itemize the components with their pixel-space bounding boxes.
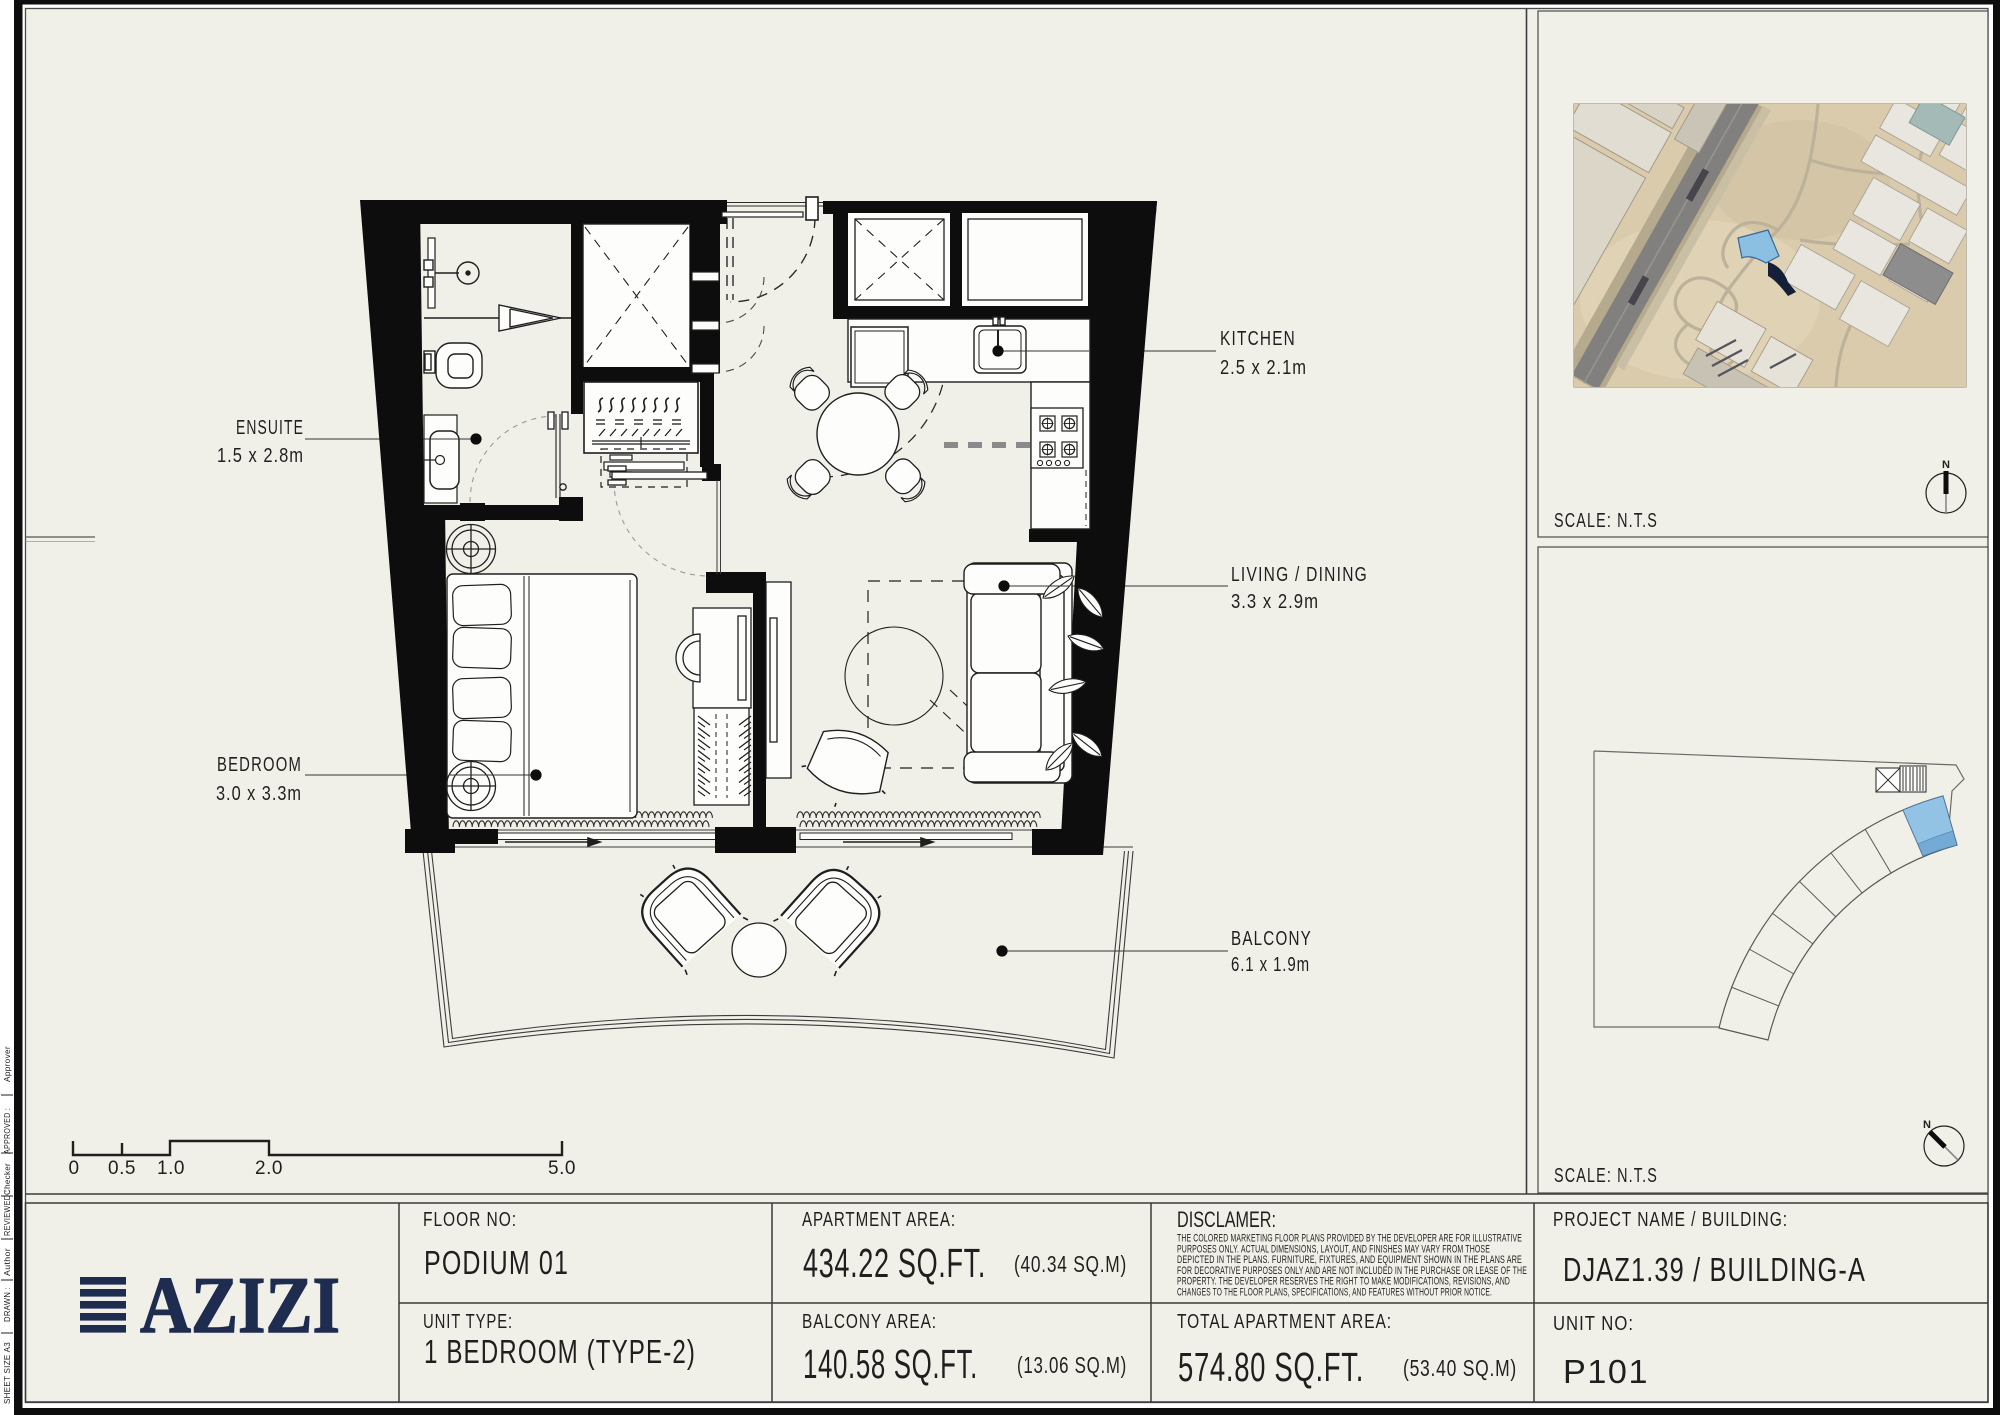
svg-text:CHANGES TO THE FLOOR PLANS, SP: CHANGES TO THE FLOOR PLANS, SPECIFICATIO… xyxy=(1177,1287,1492,1299)
svg-text:1.5 x 2.8m: 1.5 x 2.8m xyxy=(217,445,304,467)
svg-text:3.0 x 3.3m: 3.0 x 3.3m xyxy=(216,783,302,805)
svg-text:SCALE: N.T.S: SCALE: N.T.S xyxy=(1554,510,1658,532)
svg-text:Approver: Approver xyxy=(3,1046,12,1082)
svg-text:(40.34 SQ.M): (40.34 SQ.M) xyxy=(1014,1251,1127,1277)
svg-text:2.0: 2.0 xyxy=(255,1158,283,1179)
svg-text:DRAWN :: DRAWN : xyxy=(3,1287,12,1322)
svg-text:SCALE: N.T.S: SCALE: N.T.S xyxy=(1554,1165,1658,1187)
svg-text:Author: Author xyxy=(3,1248,12,1276)
svg-text:LIVING / DINING: LIVING / DINING xyxy=(1231,564,1368,586)
svg-text:PROJECT NAME / BUILDING:: PROJECT NAME / BUILDING: xyxy=(1553,1209,1788,1231)
svg-text:1.0: 1.0 xyxy=(157,1158,185,1179)
svg-text:0: 0 xyxy=(68,1158,79,1179)
svg-text:5.0: 5.0 xyxy=(548,1158,576,1179)
svg-text:UNIT TYPE:: UNIT TYPE: xyxy=(423,1311,513,1333)
svg-text:BEDROOM: BEDROOM xyxy=(217,754,302,776)
svg-text:UNIT NO:: UNIT NO: xyxy=(1553,1313,1634,1335)
svg-text:FLOOR NO:: FLOOR NO: xyxy=(423,1209,517,1231)
svg-text:1 BEDROOM (TYPE-2): 1 BEDROOM (TYPE-2) xyxy=(424,1333,696,1370)
svg-text:N: N xyxy=(1923,1119,1931,1131)
svg-text:(13.06 SQ.M): (13.06 SQ.M) xyxy=(1017,1352,1127,1378)
svg-text:SHEET SIZE A3: SHEET SIZE A3 xyxy=(3,1342,12,1404)
svg-text:TOTAL APARTMENT AREA:: TOTAL APARTMENT AREA: xyxy=(1177,1311,1392,1333)
svg-text:2.5 x 2.1m: 2.5 x 2.1m xyxy=(1220,357,1307,379)
svg-text:DISCLAMER:: DISCLAMER: xyxy=(1177,1207,1276,1232)
svg-text:3.3 x 2.9m: 3.3 x 2.9m xyxy=(1231,591,1319,613)
svg-text:P101: P101 xyxy=(1563,1353,1649,1390)
svg-text:BALCONY: BALCONY xyxy=(1231,928,1312,950)
svg-text:APPROVED :: APPROVED : xyxy=(3,1108,12,1154)
svg-text:KITCHEN: KITCHEN xyxy=(1220,328,1296,350)
svg-text:N: N xyxy=(1942,459,1950,471)
svg-text:434.22 SQ.FT.: 434.22 SQ.FT. xyxy=(803,1240,986,1286)
svg-text:APARTMENT AREA:: APARTMENT AREA: xyxy=(802,1209,956,1231)
svg-text:(53.40 SQ.M): (53.40 SQ.M) xyxy=(1403,1355,1517,1381)
svg-text:574.80 SQ.FT.: 574.80 SQ.FT. xyxy=(1178,1344,1364,1390)
svg-text:AZIZI: AZIZI xyxy=(140,1262,340,1350)
svg-text:DJAZ1.39 / BUILDING-A: DJAZ1.39 / BUILDING-A xyxy=(1563,1251,1866,1288)
svg-text:ENSUITE: ENSUITE xyxy=(236,417,304,439)
svg-text:140.58 SQ.FT.: 140.58 SQ.FT. xyxy=(803,1341,978,1387)
svg-text:REVIEWED :: REVIEWED : xyxy=(3,1190,12,1236)
svg-text:0.5: 0.5 xyxy=(108,1158,136,1179)
svg-text:6.1 x 1.9m: 6.1 x 1.9m xyxy=(1231,954,1310,976)
svg-text:PODIUM 01: PODIUM 01 xyxy=(424,1244,569,1281)
svg-text:BALCONY AREA:: BALCONY AREA: xyxy=(802,1311,937,1333)
